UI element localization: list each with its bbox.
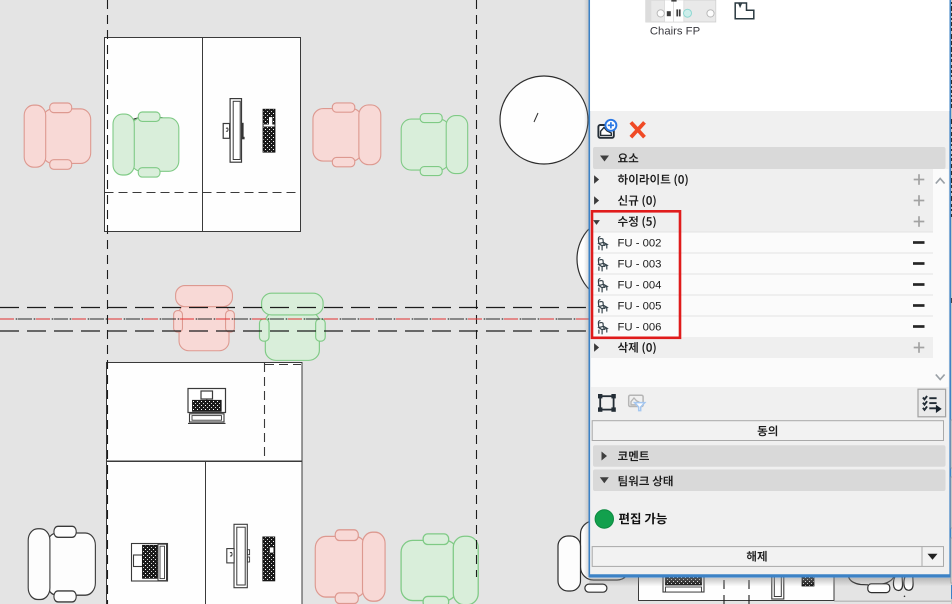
- svg-text:FU - 006: FU - 006: [618, 321, 662, 333]
- svg-text:Chairs FP: Chairs FP: [650, 26, 700, 38]
- svg-text:FU - 002: FU - 002: [618, 237, 662, 249]
- svg-text:FU - 004: FU - 004: [618, 279, 662, 291]
- svg-text:FU - 005: FU - 005: [618, 300, 662, 312]
- svg-text:FU - 003: FU - 003: [618, 258, 662, 270]
